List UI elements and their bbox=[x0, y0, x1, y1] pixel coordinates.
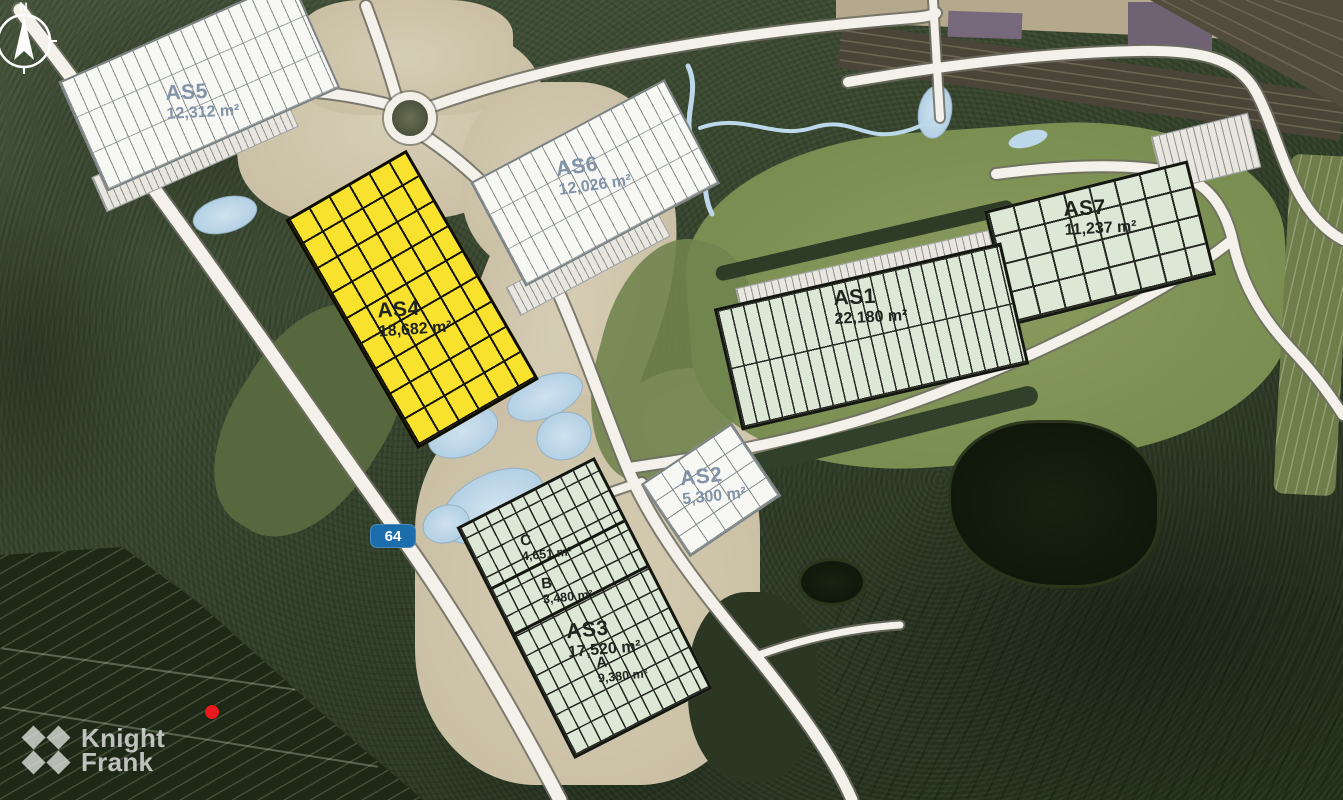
building-label-as2: AS2 5,300 m² bbox=[679, 461, 747, 510]
knight-frank-logo: Knight Frank bbox=[20, 724, 165, 776]
kf-wordmark-line2: Frank bbox=[81, 750, 165, 774]
site-plan-map: AS5 12,312 m² AS6 12,026 m² AS7 11,237 m… bbox=[0, 0, 1343, 800]
kf-mark-icon bbox=[20, 724, 72, 776]
compass: N bbox=[0, 0, 61, 76]
building-label-as7: AS7 11,237 m² bbox=[1063, 194, 1137, 240]
unit-label-b: B 3,480 m² bbox=[541, 571, 594, 606]
roundabout bbox=[384, 92, 436, 144]
building-label-as1: AS1 22,180 m² bbox=[833, 283, 908, 329]
unit-label-c: C 4,651 m² bbox=[520, 528, 573, 563]
compass-north-label: N bbox=[19, 0, 28, 14]
building-area: 12,312 m² bbox=[166, 102, 240, 124]
building-label-as5: AS5 12,312 m² bbox=[165, 78, 240, 124]
compass-needle-icon bbox=[14, 16, 34, 60]
building-label-as4: AS4 18,682 m² bbox=[377, 295, 453, 343]
red-dot-marker bbox=[205, 705, 219, 719]
road-badge-64: 64 bbox=[370, 524, 416, 548]
building-area: 11,237 m² bbox=[1064, 218, 1137, 240]
unit-label-a: A 9,380 m² bbox=[596, 650, 649, 685]
building-area: 22,180 m² bbox=[834, 307, 908, 329]
kf-wordmark: Knight Frank bbox=[81, 726, 165, 774]
